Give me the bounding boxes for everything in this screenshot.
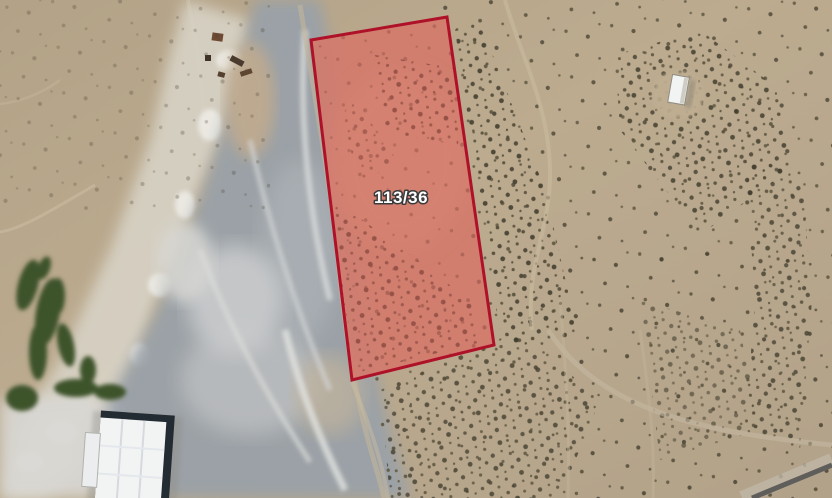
warehouse-building: [81, 410, 183, 498]
satellite-map[interactable]: 113/36: [0, 0, 832, 498]
warehouse-annex: [82, 432, 101, 487]
parcel-label: 113/36: [374, 188, 428, 207]
warehouse-roof: [95, 418, 167, 498]
terrain-canvas: 113/36: [0, 0, 832, 498]
